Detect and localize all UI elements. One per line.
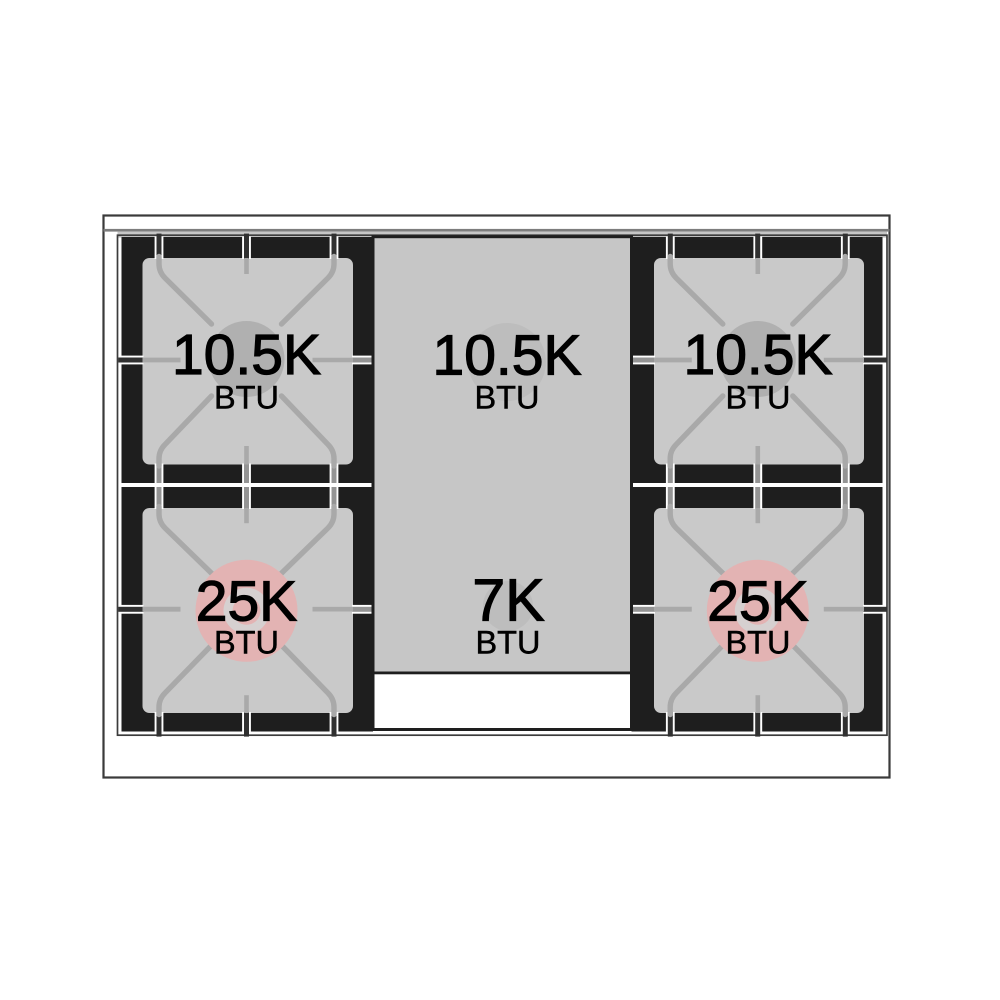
svg-text:10.5K: 10.5K: [172, 323, 321, 387]
svg-text:10.5K: 10.5K: [684, 323, 833, 387]
svg-text:BTU: BTU: [476, 625, 541, 661]
svg-text:BTU: BTU: [726, 380, 791, 416]
svg-text:10.5K: 10.5K: [433, 324, 582, 388]
svg-text:BTU: BTU: [726, 625, 791, 661]
svg-text:BTU: BTU: [214, 380, 279, 416]
svg-text:BTU: BTU: [475, 380, 540, 416]
svg-text:BTU: BTU: [214, 625, 279, 661]
